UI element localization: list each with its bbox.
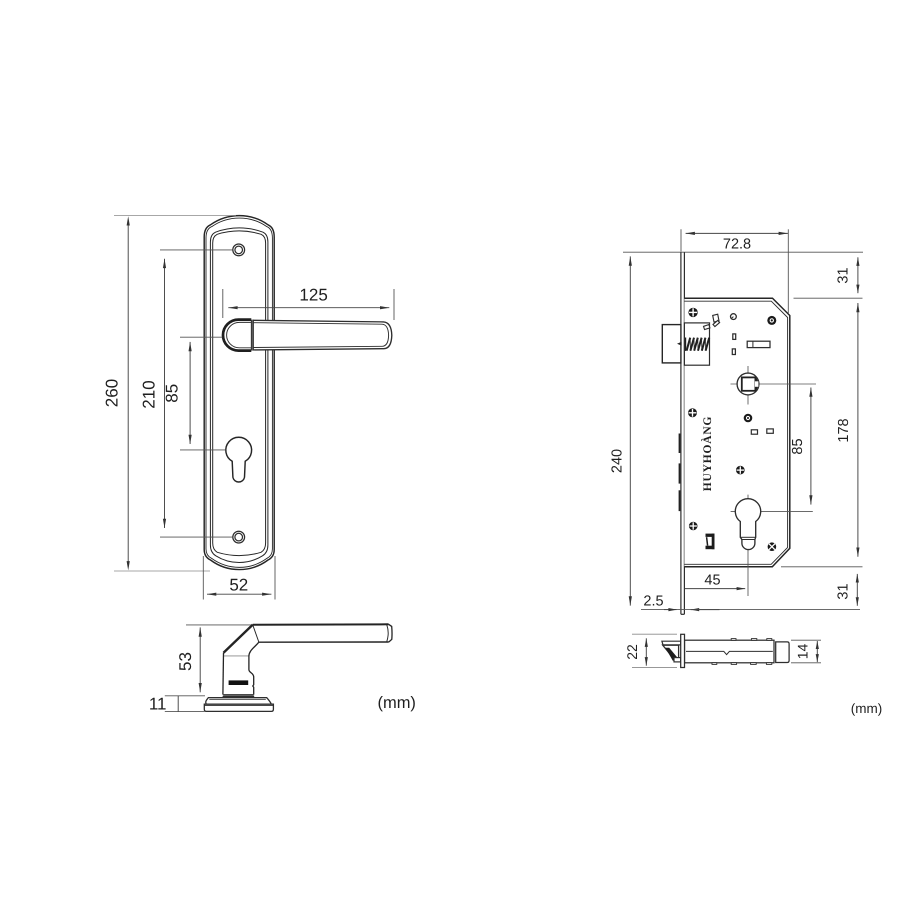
svg-text:HUYHOÀNG: HUYHOÀNG [701,416,714,491]
svg-text:2.5: 2.5 [643,594,663,610]
svg-text:22: 22 [624,644,640,660]
svg-text:72.8: 72.8 [723,237,751,253]
svg-text:85: 85 [790,438,806,454]
svg-text:53: 53 [176,652,195,671]
svg-text:240: 240 [610,449,626,473]
svg-text:125: 125 [299,285,327,304]
svg-text:11: 11 [149,695,167,714]
svg-text:45: 45 [704,573,720,589]
svg-text:260: 260 [103,379,122,407]
svg-text:(mm): (mm) [377,694,415,712]
svg-text:210: 210 [139,380,158,408]
svg-text:31: 31 [836,267,852,283]
svg-text:52: 52 [229,575,248,594]
svg-text:85: 85 [163,384,182,403]
svg-text:31: 31 [836,583,852,599]
svg-text:(mm): (mm) [851,701,882,716]
svg-text:178: 178 [836,418,852,442]
svg-text:14: 14 [795,644,811,660]
